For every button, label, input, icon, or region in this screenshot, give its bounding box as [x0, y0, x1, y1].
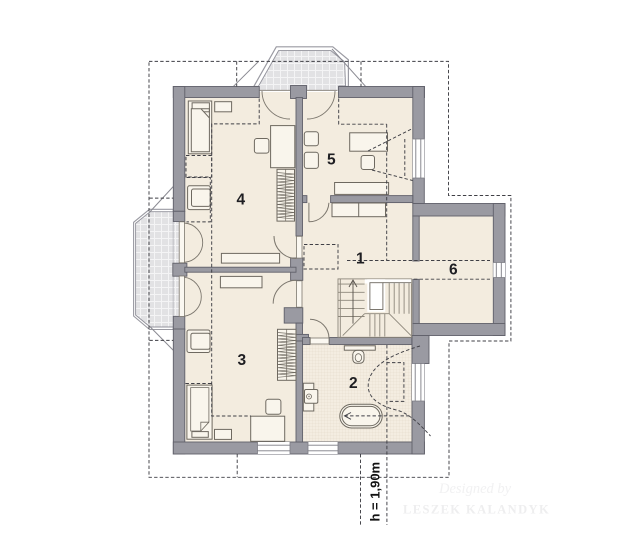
svg-text:Designed by: Designed by	[438, 481, 512, 497]
svg-text:2: 2	[349, 375, 358, 392]
svg-text:1: 1	[356, 251, 365, 268]
svg-text:LESZEK KALANDYK: LESZEK KALANDYK	[403, 503, 550, 517]
svg-text:h = 1,90m: h = 1,90m	[368, 462, 383, 522]
svg-text:6: 6	[449, 262, 458, 279]
svg-text:4: 4	[237, 192, 246, 209]
svg-text:5: 5	[327, 152, 336, 169]
svg-text:3: 3	[238, 352, 247, 369]
